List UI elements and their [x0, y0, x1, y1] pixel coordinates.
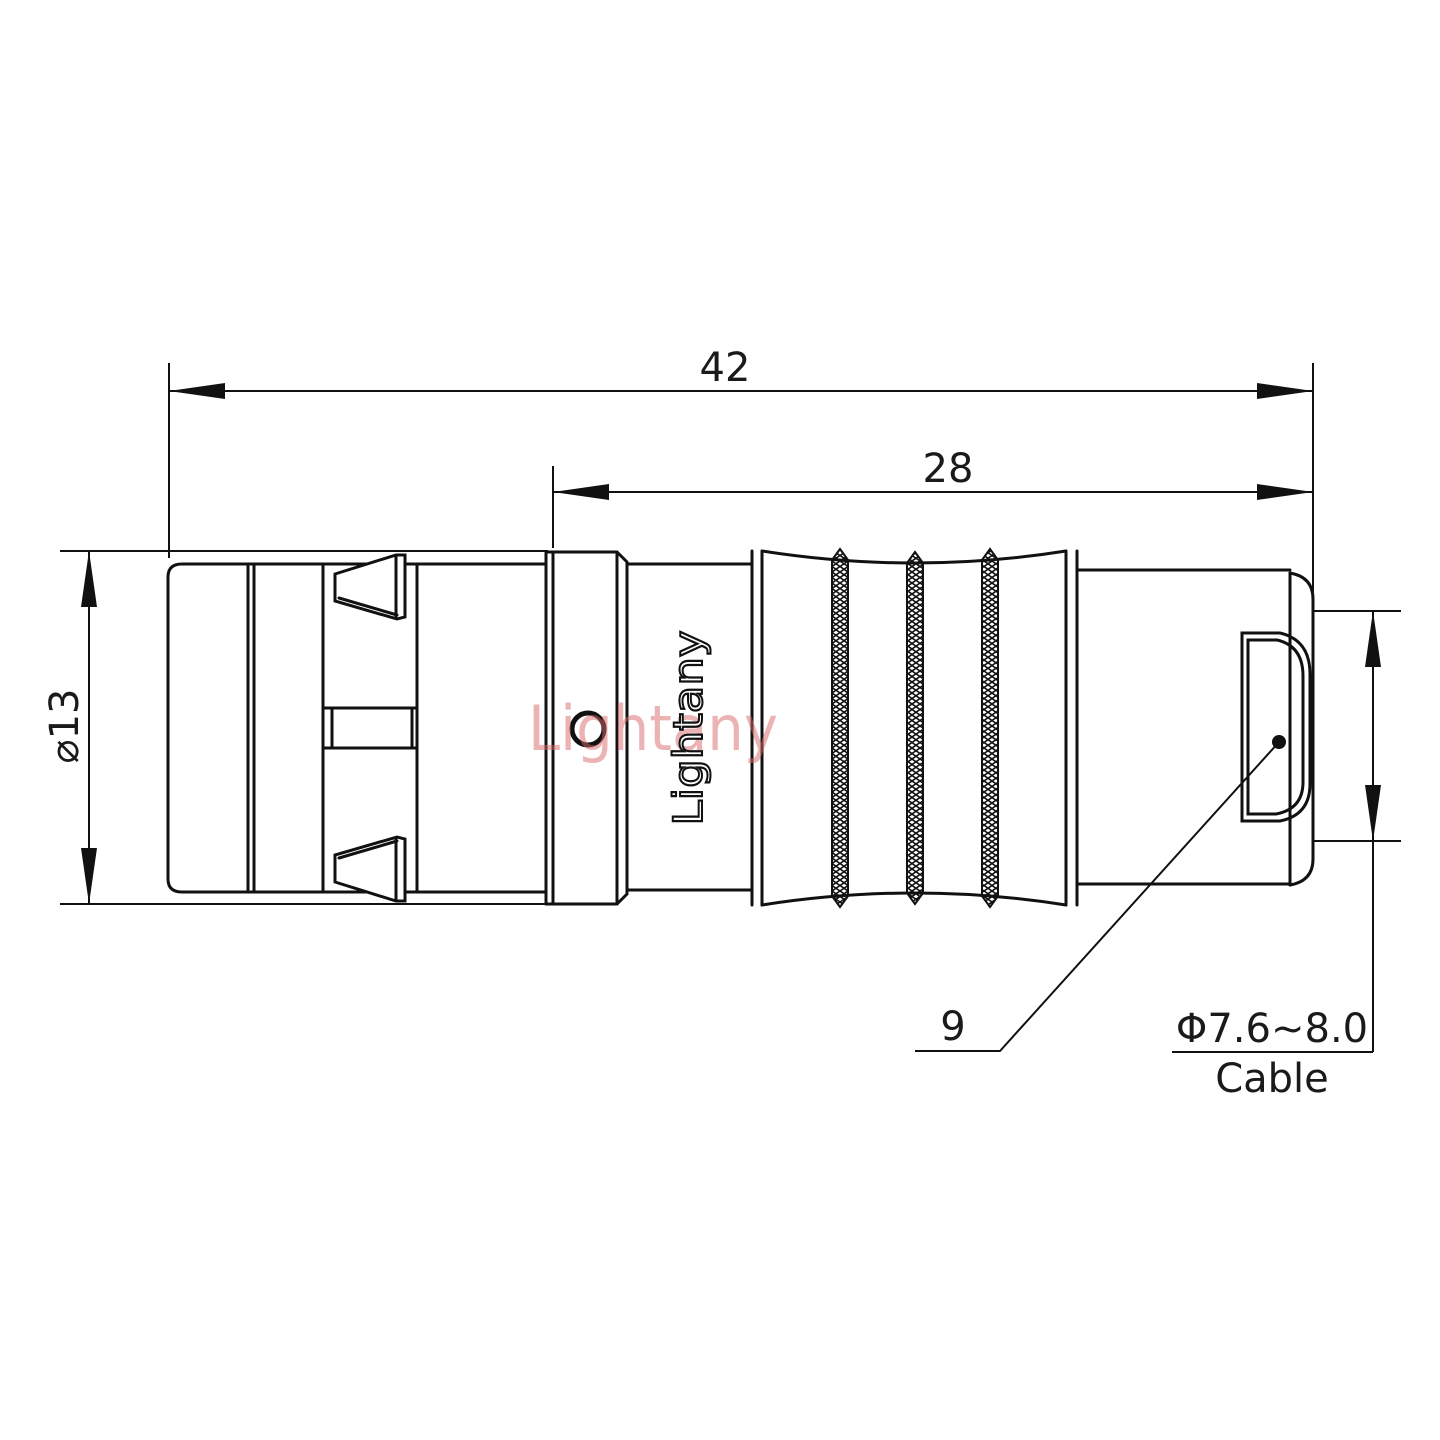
front-cap	[168, 564, 254, 892]
arrowhead-up-icon	[1365, 611, 1381, 667]
label-rear-length: 28	[923, 446, 974, 492]
knurl-band	[982, 549, 998, 907]
connector-technical-drawing: Lightany Lightany	[0, 0, 1440, 1440]
watermark-text: Lightany	[528, 692, 778, 765]
arrowhead-down-icon	[81, 848, 97, 904]
arrowhead-down-icon	[1365, 785, 1381, 841]
leader-dot-icon	[1272, 735, 1286, 749]
knurl-band	[832, 549, 848, 907]
nut-leader	[915, 735, 1286, 1051]
label-body-diameter: ⌀13	[42, 689, 88, 764]
dimension-overall-length	[169, 363, 1313, 592]
latch-window	[323, 708, 417, 748]
label-overall-length: 42	[700, 345, 751, 391]
knurl-band	[907, 552, 923, 904]
cable-sleeve	[1077, 570, 1313, 885]
dimension-body-diameter	[60, 551, 548, 904]
arrowhead-left-icon	[553, 484, 609, 500]
drawing-canvas: Lightany Lightany	[0, 0, 1440, 1440]
cable-entry-window	[1242, 633, 1310, 821]
dimension-cable-diameter	[1172, 611, 1401, 1052]
arrowhead-up-icon	[81, 551, 97, 607]
knurl-bands	[832, 549, 998, 907]
label-nut-size: 9	[940, 1004, 965, 1050]
label-cable: Cable	[1215, 1056, 1329, 1102]
arrowhead-right-icon	[1257, 383, 1313, 399]
arrowhead-left-icon	[169, 383, 225, 399]
engraving-text: Lightany	[666, 631, 712, 826]
label-cable-spec: Φ7.6~8.0	[1176, 1006, 1368, 1052]
arrowhead-right-icon	[1257, 484, 1313, 500]
